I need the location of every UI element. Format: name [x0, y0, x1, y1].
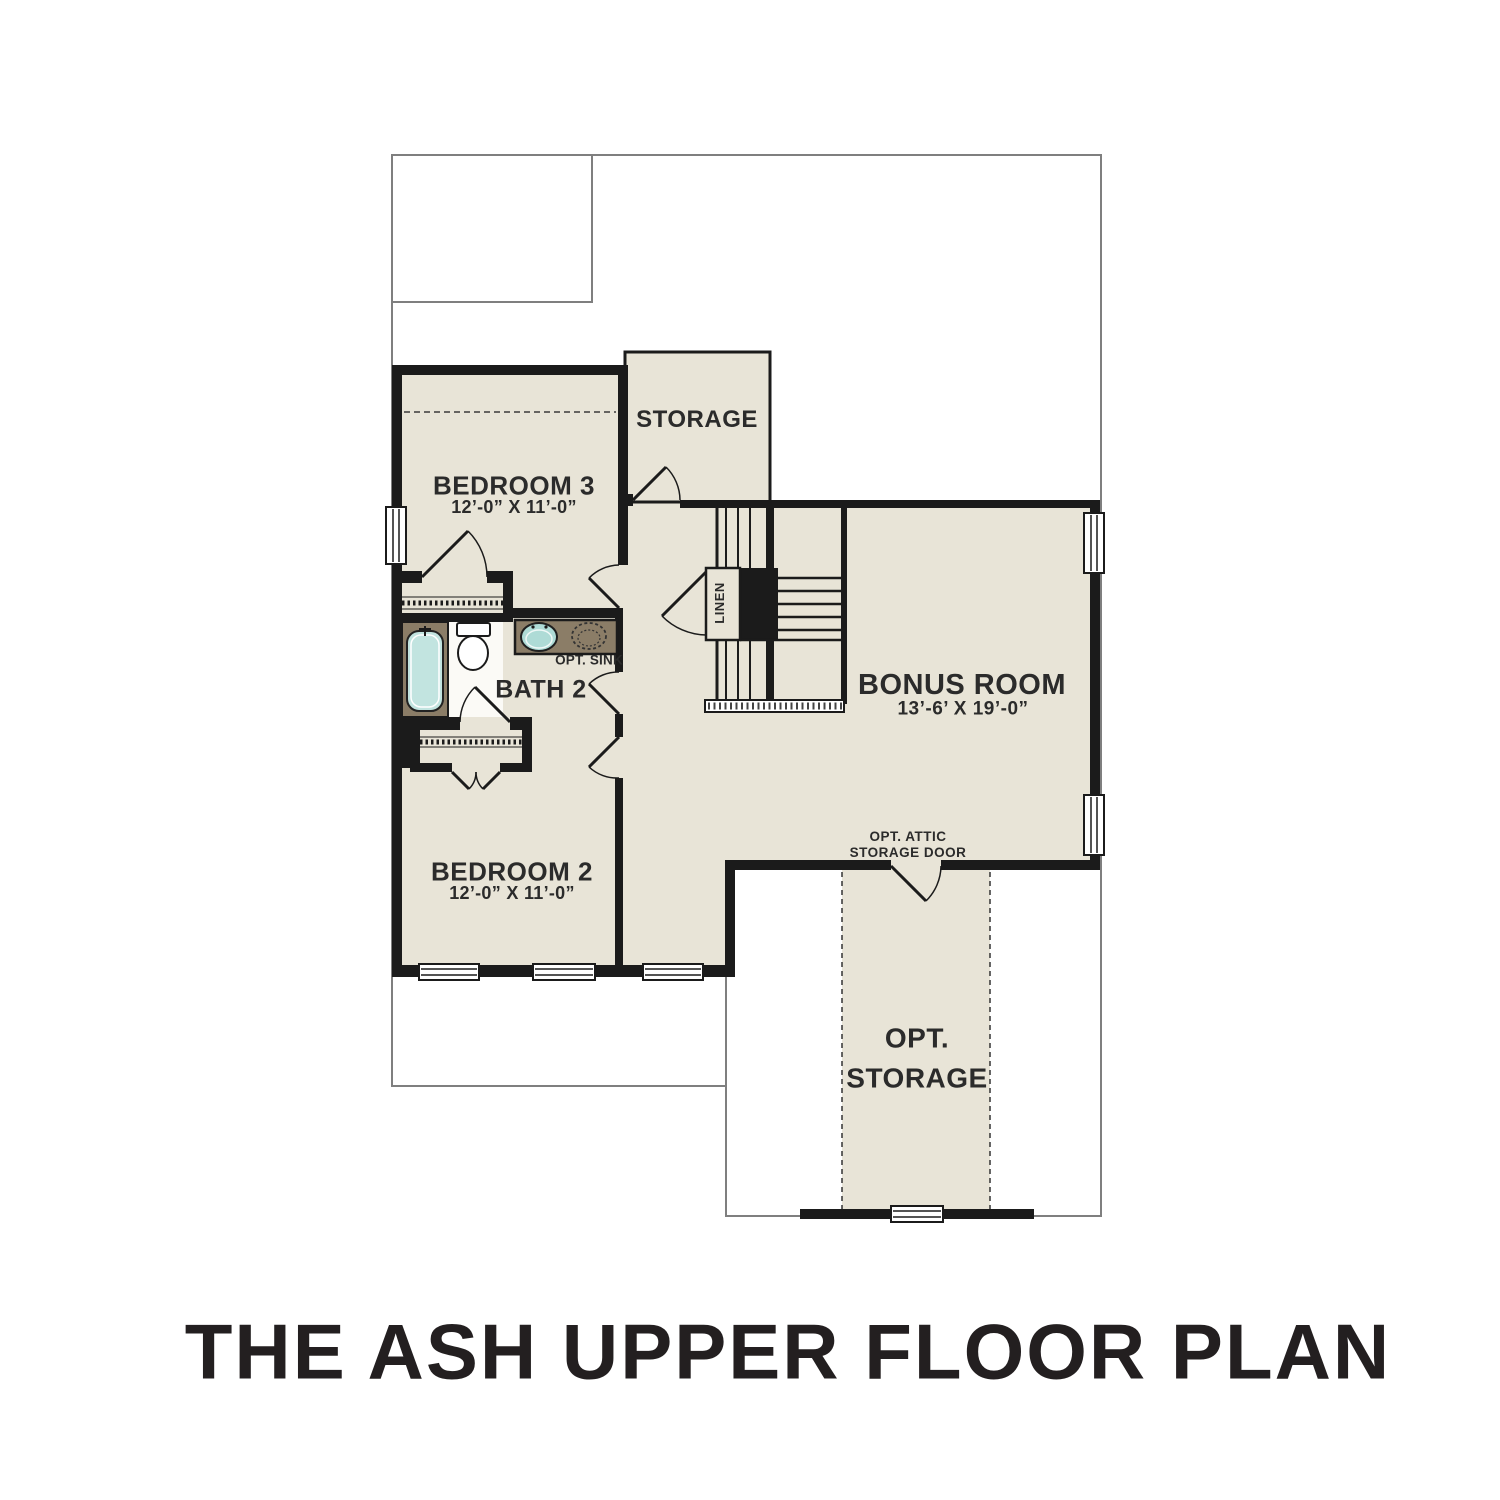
room-label-opt-storage-line2: STORAGE	[846, 1062, 987, 1093]
room-label-opt-storage: OPT. STORAGE	[846, 1018, 987, 1098]
room-label-bath2: BATH 2	[495, 676, 586, 704]
attic-storage-door-label-line2: STORAGE DOOR	[850, 845, 967, 860]
floor-plan-canvas: BEDROOM 3 12’-0” X 11’-0” STORAGE BONUS …	[0, 0, 1500, 1500]
room-dims-bonus-room: 13’-6’ X 19’-0”	[897, 700, 1028, 721]
opt-sink-label: OPT. SINK	[555, 654, 623, 669]
room-label-bedroom3: BEDROOM 3	[433, 472, 595, 501]
room-dims-bedroom3: 12’-0” X 11’-0”	[451, 498, 577, 518]
room-label-bonus-room: BONUS ROOM	[858, 670, 1066, 702]
room-label-bedroom2: BEDROOM 2	[431, 858, 593, 887]
room-label-opt-storage-line1: OPT.	[885, 1022, 949, 1053]
labels-layer: BEDROOM 3 12’-0” X 11’-0” STORAGE BONUS …	[0, 0, 1500, 1500]
room-dims-bedroom2: 12’-0” X 11’-0”	[449, 884, 575, 904]
linen-label: LINEN	[713, 582, 727, 624]
room-label-storage: STORAGE	[636, 407, 758, 433]
plan-title: THE ASH UPPER FLOOR PLAN	[185, 1307, 1392, 1398]
attic-storage-door-label-line1: OPT. ATTIC	[869, 829, 946, 844]
attic-storage-door-label: OPT. ATTIC STORAGE DOOR	[850, 829, 967, 861]
